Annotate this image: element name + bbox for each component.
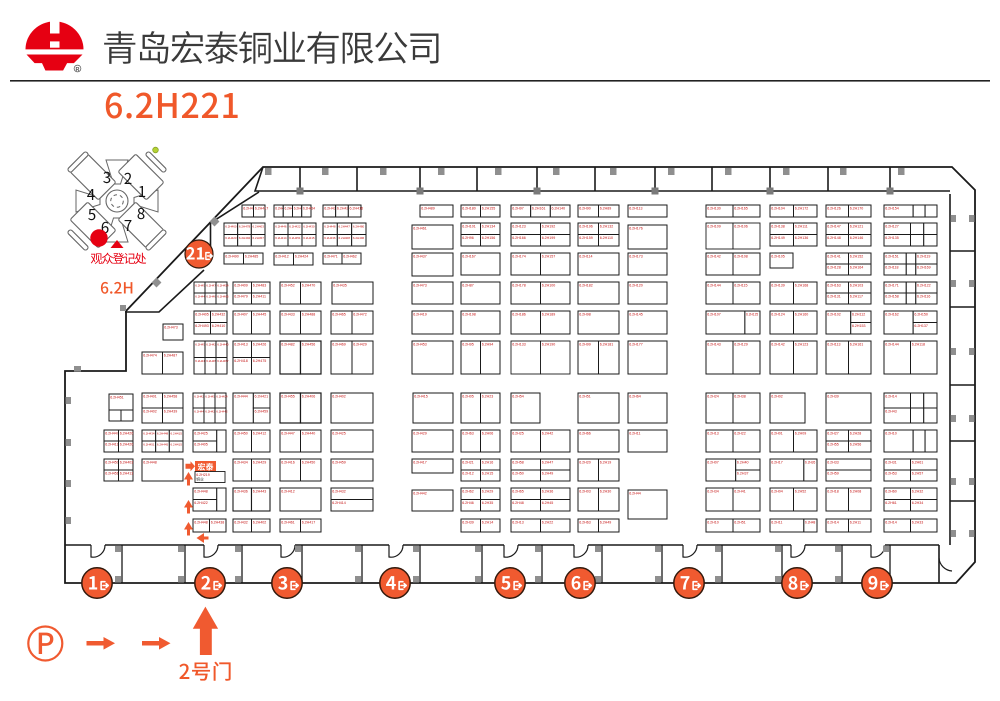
- svg-text:6.2H410: 6.2H410: [212, 324, 226, 328]
- svg-text:6.2H462: 6.2H462: [343, 254, 357, 258]
- svg-text:6.2H435: 6.2H435: [333, 283, 347, 287]
- svg-text:6.2H181: 6.2H181: [600, 342, 614, 346]
- svg-text:6.2H14: 6.2H14: [827, 520, 839, 524]
- svg-text:6.2H156: 6.2H156: [482, 236, 496, 240]
- svg-text:6.2H13: 6.2H13: [512, 520, 524, 524]
- svg-text:6.2H422: 6.2H422: [194, 501, 208, 505]
- svg-text:6.2H54: 6.2H54: [512, 394, 524, 398]
- svg-text:6.2H199: 6.2H199: [542, 236, 556, 240]
- svg-text:6.2H439: 6.2H439: [164, 409, 178, 413]
- svg-text:6.2H443: 6.2H443: [253, 489, 267, 493]
- svg-text:6.2H117: 6.2H117: [850, 294, 863, 298]
- svg-text:6.2H426: 6.2H426: [253, 342, 267, 346]
- svg-text:6.2H107: 6.2H107: [707, 312, 721, 316]
- svg-text:6.2H411: 6.2H411: [105, 442, 118, 446]
- svg-text:6.2H424: 6.2H424: [295, 254, 309, 258]
- svg-text:6.2H39: 6.2H39: [462, 520, 474, 524]
- svg-text:6.2H432: 6.2H432: [212, 312, 226, 316]
- svg-text:6.2H411: 6.2H411: [253, 294, 266, 298]
- svg-text:6.2H14: 6.2H14: [885, 520, 897, 524]
- svg-text:6.2H116: 6.2H116: [917, 294, 930, 298]
- svg-text:6.2H142: 6.2H142: [707, 254, 721, 258]
- svg-text:6.2H06: 6.2H06: [482, 431, 494, 435]
- svg-text:6.2H448: 6.2H448: [324, 224, 336, 228]
- svg-text:6.2H04: 6.2H04: [771, 489, 783, 493]
- svg-text:6.2H438: 6.2H438: [211, 520, 225, 524]
- svg-text:6.2H448: 6.2H448: [194, 520, 208, 524]
- svg-text:6.2H452: 6.2H452: [281, 283, 295, 287]
- svg-text:6.2H429: 6.2H429: [413, 431, 427, 435]
- svg-text:6.2H490: 6.2H490: [225, 254, 239, 258]
- svg-text:6.2H453: 6.2H453: [413, 342, 427, 346]
- svg-text:6.2H174: 6.2H174: [512, 254, 526, 258]
- svg-text:6.2H94: 6.2H94: [482, 342, 494, 346]
- svg-text:6.2H488: 6.2H488: [302, 312, 316, 316]
- svg-text:6.2H415: 6.2H415: [414, 394, 428, 398]
- svg-text:6.2H28: 6.2H28: [850, 431, 862, 435]
- svg-text:6.2H01: 6.2H01: [771, 431, 783, 435]
- svg-text:6.2H478: 6.2H478: [239, 224, 251, 228]
- svg-text:6.2H407: 6.2H407: [234, 312, 248, 316]
- svg-text:6.2H58: 6.2H58: [512, 460, 524, 464]
- svg-text:6.2H496: 6.2H496: [353, 236, 365, 240]
- svg-text:6.2H53: 6.2H53: [885, 471, 897, 475]
- svg-text:6.2H113: 6.2H113: [827, 342, 840, 346]
- svg-text:6.2H45: 6.2H45: [542, 501, 554, 505]
- svg-text:6.2H114: 6.2H114: [579, 254, 592, 258]
- svg-text:6.2H161: 6.2H161: [850, 342, 864, 346]
- svg-text:6.2H414: 6.2H414: [332, 501, 346, 505]
- svg-text:6.2H406: 6.2H406: [302, 394, 316, 398]
- svg-text:6.2H162: 6.2H162: [885, 312, 899, 316]
- svg-text:6.2H133: 6.2H133: [512, 342, 526, 346]
- svg-text:6.2H148: 6.2H148: [827, 236, 841, 240]
- svg-text:6.2H52: 6.2H52: [795, 489, 807, 493]
- svg-text:6.2H105: 6.2H105: [771, 254, 785, 258]
- svg-text:6.2H177: 6.2H177: [629, 342, 643, 346]
- svg-text:6.2H415: 6.2H415: [303, 236, 315, 240]
- svg-text:6.2H445: 6.2H445: [253, 312, 267, 316]
- svg-text:6.2H95: 6.2H95: [462, 342, 474, 346]
- svg-text:6.2H178: 6.2H178: [512, 283, 526, 287]
- svg-text:6.2H416: 6.2H416: [350, 206, 364, 210]
- svg-text:6.2H43: 6.2H43: [885, 409, 897, 413]
- svg-text:6.2H451: 6.2H451: [105, 471, 119, 475]
- svg-text:6.2H120: 6.2H120: [629, 283, 643, 287]
- svg-text:6.2H442: 6.2H442: [216, 409, 228, 413]
- svg-text:6.2H34: 6.2H34: [707, 489, 719, 493]
- svg-text:6.2H63: 6.2H63: [462, 431, 474, 435]
- svg-text:6.2H421: 6.2H421: [255, 394, 269, 398]
- svg-text:6.2H149: 6.2H149: [771, 236, 785, 240]
- svg-text:6.2H455: 6.2H455: [281, 394, 295, 398]
- svg-text:6.2H142: 6.2H142: [771, 342, 785, 346]
- svg-text:6.2H434: 6.2H434: [143, 431, 155, 435]
- svg-text:6.2H405: 6.2H405: [195, 312, 209, 316]
- svg-text:6.2H161: 6.2H161: [532, 206, 546, 210]
- svg-text:6.2H03: 6.2H03: [579, 489, 591, 493]
- svg-text:6.2H160: 6.2H160: [795, 312, 809, 316]
- svg-text:6.2H11: 6.2H11: [850, 520, 861, 524]
- svg-text:6.2H155: 6.2H155: [482, 206, 496, 210]
- svg-text:6.2H473: 6.2H473: [413, 283, 427, 287]
- svg-text:6.2H465: 6.2H465: [332, 312, 346, 316]
- svg-text:6.2H125: 6.2H125: [746, 312, 758, 316]
- svg-text:6.2H447: 6.2H447: [281, 431, 295, 435]
- svg-text:6.2H219: 6.2H219: [196, 473, 210, 477]
- svg-text:6.2H130: 6.2H130: [707, 206, 721, 210]
- svg-text:6.2H420: 6.2H420: [120, 431, 134, 435]
- svg-text:6.2H446: 6.2H446: [275, 224, 287, 228]
- svg-text:6.2H487: 6.2H487: [164, 353, 178, 357]
- svg-text:6.2H196: 6.2H196: [579, 224, 593, 228]
- svg-text:6.2H65: 6.2H65: [512, 489, 524, 493]
- svg-text:6.2H182: 6.2H182: [579, 283, 593, 287]
- svg-text:6.2H475: 6.2H475: [253, 359, 267, 363]
- svg-text:6.2H44: 6.2H44: [629, 491, 641, 495]
- svg-text:6.2H404: 6.2H404: [216, 394, 228, 398]
- svg-text:6.2H163: 6.2H163: [827, 283, 841, 287]
- svg-text:6.2H09: 6.2H09: [795, 431, 807, 435]
- svg-text:6.2H87: 6.2H87: [462, 283, 474, 287]
- svg-text:6.2H479: 6.2H479: [234, 294, 248, 298]
- svg-text:6.2H157: 6.2H157: [542, 254, 556, 258]
- svg-text:6.2H108: 6.2H108: [734, 254, 748, 258]
- svg-text:6.2H18: 6.2H18: [827, 489, 839, 493]
- svg-text:6.2H35: 6.2H35: [482, 501, 494, 505]
- svg-text:6.2H150: 6.2H150: [914, 312, 928, 316]
- svg-text:6.2H483: 6.2H483: [253, 283, 267, 287]
- svg-text:6.2H159: 6.2H159: [579, 236, 593, 240]
- svg-text:6.2H121: 6.2H121: [850, 224, 864, 228]
- svg-text:6.2H12: 6.2H12: [462, 471, 474, 475]
- svg-text:6.2H173: 6.2H173: [629, 254, 643, 258]
- svg-text:6.2H33: 6.2H33: [912, 520, 924, 524]
- svg-text:6.2H153: 6.2H153: [852, 324, 866, 328]
- svg-text:6.2H165: 6.2H165: [734, 206, 748, 210]
- svg-text:6.2H408: 6.2H408: [339, 236, 351, 240]
- svg-text:6.2H16: 6.2H16: [482, 460, 494, 464]
- svg-text:6.2H417: 6.2H417: [302, 520, 316, 524]
- svg-text:6.2H22: 6.2H22: [542, 520, 554, 524]
- svg-text:6.2H158: 6.2H158: [885, 294, 899, 298]
- svg-text:6.2H17: 6.2H17: [771, 460, 783, 464]
- svg-text:6.2H190: 6.2H190: [542, 342, 556, 346]
- svg-text:6.2H147: 6.2H147: [827, 224, 841, 228]
- svg-text:6.2H132: 6.2H132: [600, 224, 614, 228]
- svg-text:6.2H135: 6.2H135: [885, 236, 899, 240]
- svg-text:6.2H425: 6.2H425: [194, 431, 208, 435]
- svg-text:6.2H129: 6.2H129: [734, 342, 748, 346]
- svg-text:6.2H447: 6.2H447: [105, 431, 119, 435]
- svg-text:6.2H103: 6.2H103: [850, 283, 864, 287]
- svg-text:6.2H436: 6.2H436: [324, 236, 336, 240]
- svg-text:6.2H123: 6.2H123: [512, 224, 526, 228]
- svg-text:6.2H10: 6.2H10: [707, 520, 719, 524]
- svg-text:6.2H459: 6.2H459: [332, 460, 346, 464]
- svg-text:6.2H144: 6.2H144: [707, 283, 721, 287]
- svg-text:6.2H450: 6.2H450: [234, 431, 248, 435]
- svg-text:6.2H402: 6.2H402: [143, 409, 157, 413]
- svg-text:6.2H450: 6.2H450: [302, 460, 316, 464]
- svg-text:6.2H144: 6.2H144: [885, 342, 899, 346]
- svg-text:6.2H429: 6.2H429: [253, 460, 267, 464]
- svg-text:6.2H136: 6.2H136: [795, 236, 809, 240]
- svg-text:6.2H482: 6.2H482: [281, 342, 295, 346]
- svg-text:6.2H139: 6.2H139: [771, 283, 785, 287]
- svg-text:6.2H48: 6.2H48: [805, 520, 816, 524]
- svg-text:6.2H37: 6.2H37: [737, 471, 749, 475]
- svg-text:6.2H101: 6.2H101: [462, 224, 476, 228]
- svg-text:6.2H430: 6.2H430: [303, 224, 315, 228]
- svg-text:6.2H96: 6.2H96: [462, 236, 474, 240]
- svg-text:6.2H124: 6.2H124: [771, 312, 785, 316]
- svg-text:6.2H440: 6.2H440: [217, 342, 229, 346]
- svg-text:6.2H61: 6.2H61: [885, 501, 897, 505]
- svg-text:6.2H109: 6.2H109: [707, 224, 721, 228]
- svg-text:6.2H11: 6.2H11: [629, 431, 640, 435]
- svg-text:6.2H437: 6.2H437: [413, 254, 427, 258]
- svg-text:6.2H412: 6.2H412: [275, 254, 289, 258]
- svg-text:6.2H118: 6.2H118: [912, 342, 925, 346]
- svg-text:6.2H409: 6.2H409: [234, 283, 248, 287]
- svg-text:6.2H171: 6.2H171: [885, 283, 899, 287]
- svg-text:6.2H420: 6.2H420: [120, 442, 134, 446]
- svg-text:6.2H405: 6.2H405: [194, 442, 208, 446]
- svg-text:6.2H167: 6.2H167: [462, 254, 476, 258]
- svg-text:6.2H470: 6.2H470: [302, 283, 316, 287]
- svg-text:6.2H14: 6.2H14: [885, 394, 897, 398]
- svg-text:6.2H33: 6.2H33: [827, 460, 839, 464]
- svg-text:6.2H46: 6.2H46: [462, 501, 474, 505]
- svg-text:6.2H51: 6.2H51: [734, 520, 746, 524]
- svg-text:6.2H05: 6.2H05: [462, 394, 474, 398]
- svg-text:6.2H07: 6.2H07: [707, 460, 719, 464]
- svg-text:6.2H64: 6.2H64: [629, 394, 641, 398]
- svg-text:6.2H134: 6.2H134: [482, 224, 496, 228]
- svg-text:6.2H11: 6.2H11: [771, 520, 782, 524]
- svg-text:6.2H19: 6.2H19: [600, 460, 612, 464]
- svg-text:6.2H403: 6.2H403: [120, 460, 134, 464]
- svg-text:6.2H447: 6.2H447: [339, 224, 351, 228]
- svg-text:6.2H56: 6.2H56: [850, 442, 862, 446]
- svg-text:6.2H39: 6.2H39: [827, 394, 839, 398]
- svg-text:6.2H445: 6.2H445: [157, 442, 169, 446]
- svg-text:6.2H459: 6.2H459: [255, 409, 269, 413]
- svg-text:6.2H98: 6.2H98: [579, 312, 591, 316]
- svg-text:6.2H423: 6.2H423: [225, 236, 237, 240]
- svg-text:6.2H417: 6.2H417: [413, 460, 427, 464]
- svg-text:6.2H138: 6.2H138: [771, 224, 785, 228]
- svg-text:6.2H402: 6.2H402: [253, 520, 267, 524]
- svg-text:6.2H414: 6.2H414: [275, 236, 287, 240]
- svg-text:6.2H55: 6.2H55: [827, 442, 839, 446]
- svg-text:6.2H189: 6.2H189: [542, 312, 556, 316]
- svg-text:6.2H115: 6.2H115: [734, 283, 747, 287]
- svg-text:6.2H15: 6.2H15: [482, 471, 494, 475]
- svg-text:6.2H169: 6.2H169: [917, 265, 931, 269]
- svg-text:6.2H186: 6.2H186: [512, 312, 526, 316]
- svg-text:6.2H489: 6.2H489: [421, 206, 435, 210]
- svg-text:6.2H460: 6.2H460: [225, 224, 237, 228]
- svg-text:6.2H143: 6.2H143: [707, 342, 721, 346]
- svg-text:6.2H127: 6.2H127: [885, 224, 899, 228]
- svg-text:6.2H140: 6.2H140: [552, 206, 566, 210]
- svg-text:6.2H112: 6.2H112: [852, 312, 865, 316]
- svg-text:6.2H168: 6.2H168: [795, 283, 809, 287]
- svg-text:6.2H110: 6.2H110: [600, 236, 613, 240]
- svg-text:6.2H432: 6.2H432: [332, 489, 346, 493]
- svg-text:6.2H102: 6.2H102: [827, 312, 841, 316]
- svg-text:6.2H415: 6.2H415: [171, 431, 183, 435]
- svg-text:6.2H31: 6.2H31: [885, 460, 897, 464]
- svg-text:6.2H40: 6.2H40: [737, 460, 749, 464]
- svg-text:6.2H493: 6.2H493: [195, 324, 209, 328]
- svg-text:6.2H141: 6.2H141: [827, 254, 841, 258]
- svg-text:6.2H13: 6.2H13: [707, 431, 719, 435]
- svg-text:6.2H450: 6.2H450: [105, 460, 119, 464]
- svg-text:6.2H97: 6.2H97: [512, 206, 524, 210]
- svg-text:6.2H29: 6.2H29: [482, 489, 494, 493]
- svg-text:6.2H492: 6.2H492: [239, 236, 251, 240]
- svg-text:6.2H418: 6.2H418: [234, 359, 248, 363]
- svg-text:6.2H402: 6.2H402: [332, 394, 346, 398]
- svg-text:6.2H145: 6.2H145: [629, 312, 643, 316]
- svg-text:6.2H59: 6.2H59: [827, 471, 839, 475]
- svg-text:6.2H451: 6.2H451: [110, 395, 124, 399]
- svg-text:6.2H36: 6.2H36: [542, 489, 554, 493]
- svg-text:6.2H60: 6.2H60: [885, 489, 897, 493]
- svg-text:6.2H27: 6.2H27: [827, 431, 839, 435]
- svg-text:6.2H166: 6.2H166: [512, 236, 526, 240]
- svg-text:6.2H02: 6.2H02: [771, 394, 783, 398]
- svg-text:6.2H415: 6.2H415: [171, 442, 183, 446]
- svg-text:6.2H62: 6.2H62: [462, 489, 474, 493]
- svg-text:6.2H485: 6.2H485: [245, 254, 259, 258]
- svg-text:6.2H401: 6.2H401: [143, 394, 157, 398]
- svg-text:6.2H21: 6.2H21: [462, 460, 474, 464]
- svg-text:6.2H416: 6.2H416: [281, 460, 295, 464]
- svg-text:6.2H128: 6.2H128: [827, 265, 841, 269]
- svg-text:6.2H461: 6.2H461: [413, 226, 427, 230]
- svg-text:6.2H20: 6.2H20: [579, 460, 591, 464]
- svg-text:6.2H458: 6.2H458: [164, 394, 178, 398]
- svg-text:6.2H49: 6.2H49: [600, 520, 612, 524]
- svg-text:6.2H444: 6.2H444: [234, 394, 248, 398]
- svg-text:6.2H22: 6.2H22: [734, 431, 746, 435]
- svg-text:6.2H412: 6.2H412: [281, 489, 295, 493]
- svg-text:6.2H137: 6.2H137: [914, 324, 928, 328]
- svg-text:6.2H448: 6.2H448: [143, 460, 157, 464]
- svg-text:6.2H192: 6.2H192: [542, 224, 556, 228]
- svg-text:6.2H152: 6.2H152: [850, 254, 864, 258]
- svg-text:6.2H176: 6.2H176: [629, 226, 643, 230]
- svg-text:6.2H473: 6.2H473: [164, 325, 178, 329]
- svg-text:6.2H154: 6.2H154: [885, 206, 899, 210]
- svg-text:6.2H457: 6.2H457: [253, 236, 265, 240]
- svg-text:R: R: [76, 67, 80, 73]
- svg-text:6.2H63: 6.2H63: [579, 520, 591, 524]
- svg-text:6.2H198: 6.2H198: [462, 312, 476, 316]
- svg-text:6.2H61: 6.2H61: [912, 460, 924, 464]
- svg-text:6.2H99: 6.2H99: [579, 342, 591, 346]
- svg-text:6.2H413: 6.2H413: [120, 471, 134, 475]
- svg-text:6.2H57: 6.2H57: [912, 471, 924, 475]
- svg-text:6.2H10: 6.2H10: [885, 431, 897, 435]
- svg-text:6.2H180: 6.2H180: [462, 206, 476, 210]
- svg-text:6.2H472: 6.2H472: [353, 312, 367, 316]
- svg-text:6.2H454: 6.2H454: [217, 283, 229, 287]
- svg-text:6.2H113: 6.2H113: [629, 206, 642, 210]
- svg-text:6.2H474: 6.2H474: [143, 353, 157, 357]
- svg-text:6.2H14: 6.2H14: [482, 520, 494, 524]
- svg-text:6.2H25: 6.2H25: [512, 431, 524, 435]
- svg-text:6.2H448: 6.2H448: [194, 489, 208, 493]
- svg-text:6.2H451: 6.2H451: [143, 442, 155, 446]
- svg-text:6.2H432: 6.2H432: [234, 520, 248, 524]
- svg-text:6.2H51: 6.2H51: [579, 394, 591, 398]
- svg-text:6.2H26: 6.2H26: [805, 460, 816, 464]
- svg-text:6.2H413: 6.2H413: [234, 342, 248, 346]
- svg-text:6.2H118: 6.2H118: [885, 265, 898, 269]
- svg-text:6.2H469: 6.2H469: [332, 342, 346, 346]
- svg-text:6.2H131: 6.2H131: [827, 294, 841, 298]
- svg-text:6.2H42: 6.2H42: [542, 431, 554, 435]
- svg-text:6.2H123: 6.2H123: [795, 342, 809, 346]
- svg-text:6.2H448: 6.2H448: [157, 431, 169, 435]
- svg-text:6.2H429: 6.2H429: [353, 342, 367, 346]
- svg-text:6.2H23: 6.2H23: [482, 394, 494, 398]
- svg-text:6.2H08: 6.2H08: [850, 489, 862, 493]
- svg-text:6.2H436: 6.2H436: [234, 489, 248, 493]
- svg-text:6.2H32: 6.2H32: [912, 489, 924, 493]
- svg-text:6.2H425: 6.2H425: [332, 431, 346, 435]
- svg-text:6.2H151: 6.2H151: [885, 254, 899, 258]
- svg-text:6.2H170: 6.2H170: [850, 206, 864, 210]
- svg-text:6.2H480: 6.2H480: [353, 224, 365, 228]
- svg-text:6.2H48: 6.2H48: [512, 501, 524, 505]
- svg-text:6.2H456: 6.2H456: [302, 342, 316, 346]
- svg-text:6.2H49: 6.2H49: [542, 471, 554, 475]
- svg-text:6.2H433: 6.2H433: [281, 312, 295, 316]
- svg-text:6.2H471: 6.2H471: [324, 254, 338, 258]
- svg-text:6.2H90: 6.2H90: [579, 206, 591, 210]
- svg-text:6.2H434: 6.2H434: [303, 206, 315, 210]
- svg-text:6.2H122: 6.2H122: [917, 283, 931, 287]
- svg-text:6.2H104: 6.2H104: [771, 206, 785, 210]
- svg-text:6.2H106: 6.2H106: [734, 224, 748, 228]
- svg-text:6.2H100: 6.2H100: [542, 283, 556, 287]
- svg-text:6.2H89: 6.2H89: [600, 206, 612, 210]
- svg-text:6.2H50: 6.2H50: [512, 471, 524, 475]
- svg-text:6.2H403: 6.2H403: [253, 224, 265, 228]
- svg-text:6.2H467: 6.2H467: [217, 359, 229, 363]
- svg-text:6.2H466: 6.2H466: [217, 294, 229, 298]
- svg-text:6.2H119: 6.2H119: [917, 254, 930, 258]
- svg-text:6.2H412: 6.2H412: [253, 431, 267, 435]
- svg-text:6.2H47: 6.2H47: [542, 460, 554, 464]
- svg-text:6.2H41: 6.2H41: [734, 489, 746, 493]
- svg-text:6.2H38: 6.2H38: [734, 394, 746, 398]
- svg-text:6.2H111: 6.2H111: [795, 224, 808, 228]
- svg-text:6.2H440: 6.2H440: [302, 431, 316, 435]
- svg-text:6.2H24: 6.2H24: [707, 394, 719, 398]
- svg-text:6.2H419: 6.2H419: [413, 312, 427, 316]
- svg-text:6.2H164: 6.2H164: [850, 265, 864, 269]
- svg-text:6.2H461: 6.2H461: [281, 520, 295, 524]
- svg-text:6.2H442: 6.2H442: [413, 491, 427, 495]
- svg-text:6.2H126: 6.2H126: [827, 206, 841, 210]
